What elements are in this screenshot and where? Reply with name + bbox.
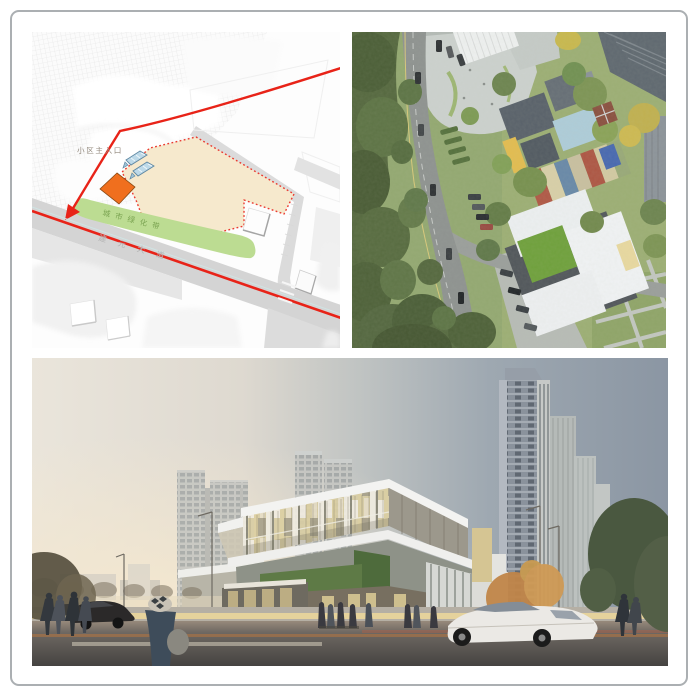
svg-text:小区主入口: 小区主入口 bbox=[77, 145, 123, 155]
